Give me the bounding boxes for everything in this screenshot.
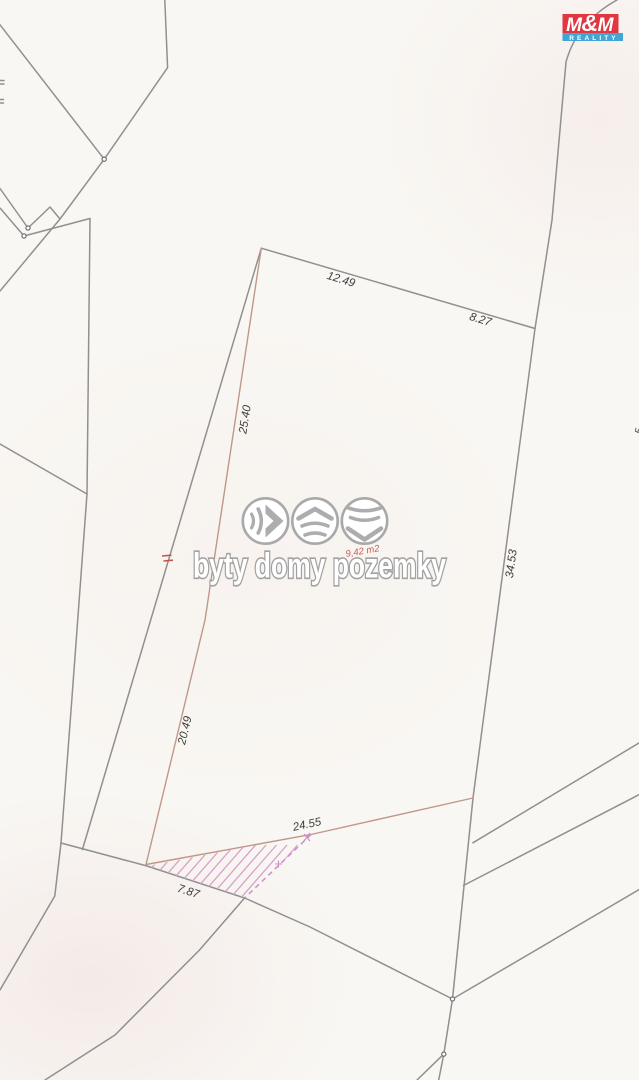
svg-text:REALITY: REALITY (569, 35, 619, 42)
svg-text:byty domy pozemky: byty domy pozemky (193, 547, 446, 586)
svg-text:5: 5 (634, 427, 639, 435)
